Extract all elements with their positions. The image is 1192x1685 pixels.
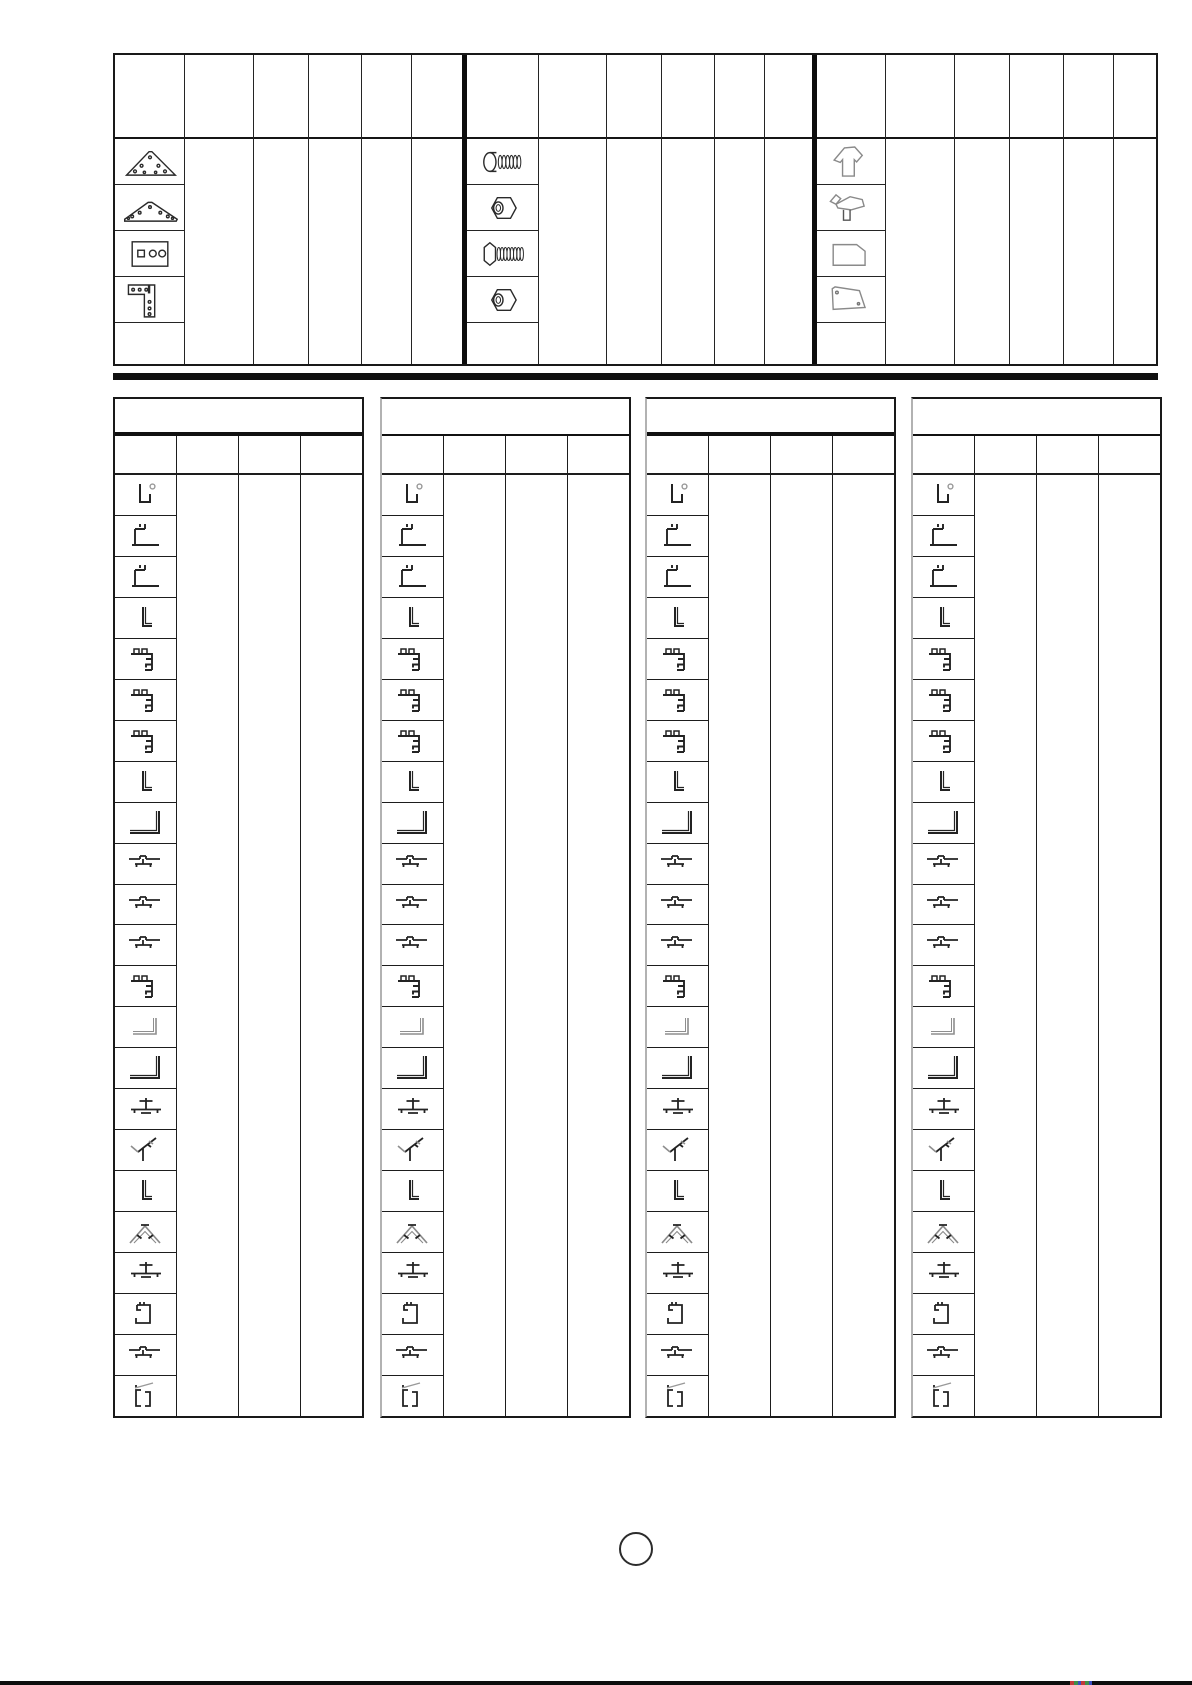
profile-row bbox=[913, 885, 974, 926]
table-header-cell bbox=[607, 55, 661, 139]
glazing-bar-profile-icon bbox=[924, 1338, 964, 1372]
profile-row bbox=[382, 516, 443, 557]
large-angle-profile-icon bbox=[393, 1051, 433, 1085]
profile-column-header bbox=[506, 436, 568, 473]
shallow-angle-profile-icon bbox=[393, 1010, 433, 1044]
corner-post-profile-icon bbox=[658, 969, 698, 1003]
profile-row bbox=[913, 721, 974, 762]
part-row bbox=[115, 185, 184, 231]
table-header-cell bbox=[412, 55, 462, 139]
quantity-column bbox=[771, 475, 833, 1416]
table-header-cell bbox=[185, 55, 253, 139]
angle-profile-icon bbox=[924, 765, 964, 799]
quantity-column bbox=[955, 55, 1010, 364]
angle-profile-icon bbox=[924, 1174, 964, 1208]
profile-icon-column bbox=[913, 475, 975, 1416]
door-rail-profile-icon bbox=[924, 1379, 964, 1413]
profile-row bbox=[115, 1253, 176, 1294]
profile-row bbox=[647, 1171, 708, 1212]
profile-row bbox=[913, 762, 974, 803]
profile-row bbox=[913, 844, 974, 885]
profile-row bbox=[115, 803, 176, 844]
glazing-bar-profile-icon bbox=[126, 928, 166, 962]
table-header-cell bbox=[309, 55, 361, 139]
profile-row bbox=[647, 1335, 708, 1376]
profile-row bbox=[382, 475, 443, 516]
glazing-bar-profile-icon bbox=[924, 847, 964, 881]
channel-clip-profile-icon bbox=[924, 1297, 964, 1331]
angle-profile-icon bbox=[658, 765, 698, 799]
profile-row bbox=[913, 1335, 974, 1376]
tee-profile-icon bbox=[126, 1256, 166, 1290]
profile-row bbox=[115, 1007, 176, 1048]
table-header-cell bbox=[1114, 55, 1158, 139]
profile-column-header bbox=[771, 436, 833, 473]
base-sill-profile-icon bbox=[126, 519, 166, 553]
profile-row bbox=[382, 1130, 443, 1171]
page-number-circle bbox=[619, 1532, 653, 1566]
tee-profile-icon bbox=[924, 1092, 964, 1126]
profile-table-3 bbox=[645, 397, 896, 1418]
profile-table-subheader bbox=[382, 436, 629, 475]
large-angle-profile-icon bbox=[126, 806, 166, 840]
profile-row bbox=[382, 1048, 443, 1089]
profile-row bbox=[647, 762, 708, 803]
profile-row bbox=[382, 680, 443, 721]
glazing-bar-profile-icon bbox=[658, 888, 698, 922]
profile-row bbox=[382, 1376, 443, 1416]
u-channel-profile-icon bbox=[393, 478, 433, 512]
profile-row bbox=[913, 1171, 974, 1212]
quantity-column bbox=[301, 475, 362, 1416]
glazing-bar-profile-icon bbox=[924, 928, 964, 962]
profile-row bbox=[647, 844, 708, 885]
table-header-cell bbox=[817, 55, 885, 139]
profile-row bbox=[913, 680, 974, 721]
corner-post-profile-icon bbox=[393, 724, 433, 758]
angle-profile-icon bbox=[658, 1174, 698, 1208]
profile-column-header bbox=[647, 436, 709, 473]
profile-table-subheader bbox=[115, 436, 362, 475]
empty-cell bbox=[886, 139, 954, 364]
profile-row bbox=[913, 516, 974, 557]
profile-row bbox=[647, 1007, 708, 1048]
empty-cell bbox=[955, 139, 1009, 364]
glazing-bar-profile-icon bbox=[126, 1338, 166, 1372]
large-angle-profile-icon bbox=[658, 806, 698, 840]
empty-cell bbox=[185, 139, 253, 364]
profile-table-subheader bbox=[913, 436, 1160, 475]
profile-column-header bbox=[382, 436, 444, 473]
profile-row bbox=[115, 844, 176, 885]
quantity-column bbox=[1010, 55, 1064, 364]
profile-row bbox=[647, 1130, 708, 1171]
corner-post-profile-icon bbox=[126, 724, 166, 758]
profile-row bbox=[647, 475, 708, 516]
profile-row bbox=[382, 925, 443, 966]
profile-row bbox=[115, 680, 176, 721]
door-rail-profile-icon bbox=[658, 1379, 698, 1413]
profile-row bbox=[382, 1007, 443, 1048]
table-header-cell bbox=[662, 55, 714, 139]
profile-icon-column bbox=[115, 475, 177, 1416]
quantity-column bbox=[568, 475, 629, 1416]
long-hex-bolt-icon bbox=[473, 233, 533, 275]
tee-profile-icon bbox=[924, 1256, 964, 1290]
table-header-cell bbox=[254, 55, 308, 139]
profile-column-header bbox=[568, 436, 629, 473]
ridge-profile-icon bbox=[126, 1215, 166, 1249]
corner-post-profile-icon bbox=[393, 642, 433, 676]
profile-table-1 bbox=[113, 397, 364, 1418]
profile-row bbox=[115, 885, 176, 926]
base-sill-profile-icon bbox=[924, 519, 964, 553]
profile-table-title-band bbox=[647, 399, 894, 436]
table-header-cell bbox=[362, 55, 411, 139]
shallow-angle-profile-icon bbox=[126, 1010, 166, 1044]
tee-profile-icon bbox=[658, 1256, 698, 1290]
quantity-column bbox=[833, 475, 894, 1416]
profile-row bbox=[647, 1089, 708, 1130]
base-sill-profile-icon bbox=[924, 560, 964, 594]
profile-row bbox=[913, 925, 974, 966]
panel-parts-icon-column bbox=[817, 55, 886, 364]
profile-table-body bbox=[647, 475, 894, 1416]
large-angle-profile-icon bbox=[126, 1051, 166, 1085]
angle-profile-icon bbox=[924, 601, 964, 635]
profile-row bbox=[913, 1007, 974, 1048]
empty-cell bbox=[115, 323, 184, 364]
profile-column-header bbox=[301, 436, 362, 473]
profile-row bbox=[382, 966, 443, 1007]
profile-row bbox=[382, 1253, 443, 1294]
corner-clip-panel-icon bbox=[821, 187, 881, 229]
glazing-bar-profile-icon bbox=[126, 888, 166, 922]
quantity-column bbox=[662, 55, 715, 364]
profile-row bbox=[647, 1253, 708, 1294]
table-header-cell bbox=[539, 55, 606, 139]
door-rail-profile-icon bbox=[393, 1379, 433, 1413]
profile-column-header bbox=[833, 436, 894, 473]
profile-row bbox=[115, 639, 176, 680]
profile-row bbox=[382, 1212, 443, 1253]
profile-column-header bbox=[1099, 436, 1160, 473]
corner-post-profile-icon bbox=[658, 642, 698, 676]
quantity-column bbox=[185, 55, 254, 364]
profile-column-header bbox=[444, 436, 506, 473]
glazing-bar-profile-icon bbox=[658, 1338, 698, 1372]
pan-head-bolt-icon bbox=[473, 141, 533, 183]
profile-row bbox=[913, 557, 974, 598]
tee-profile-icon bbox=[393, 1256, 433, 1290]
empty-cell bbox=[1064, 139, 1113, 364]
profile-row bbox=[647, 680, 708, 721]
profile-row bbox=[382, 1171, 443, 1212]
corner-post-profile-icon bbox=[924, 683, 964, 717]
empty-cell bbox=[467, 323, 538, 364]
base-sill-profile-icon bbox=[126, 560, 166, 594]
empty-cell bbox=[765, 139, 812, 364]
part-row bbox=[115, 231, 184, 277]
tee-profile-icon bbox=[393, 1092, 433, 1126]
profile-row bbox=[647, 885, 708, 926]
tee-profile-icon bbox=[126, 1092, 166, 1126]
profile-row bbox=[647, 598, 708, 639]
parts-inventory-table bbox=[113, 53, 1158, 366]
part-row bbox=[467, 185, 538, 231]
large-angle-profile-icon bbox=[924, 1051, 964, 1085]
profile-column-header bbox=[913, 436, 975, 473]
profile-column-header bbox=[1037, 436, 1099, 473]
profile-row bbox=[647, 1048, 708, 1089]
ridge-profile-icon bbox=[924, 1215, 964, 1249]
hex-nut-icon bbox=[473, 187, 533, 229]
quantity-column bbox=[1037, 475, 1099, 1416]
profile-row bbox=[115, 1376, 176, 1416]
profile-row bbox=[115, 1048, 176, 1089]
quantity-column bbox=[709, 475, 771, 1416]
part-row bbox=[115, 277, 184, 323]
profile-row bbox=[382, 1335, 443, 1376]
profile-row bbox=[115, 1171, 176, 1212]
part-row bbox=[467, 231, 538, 277]
profile-row bbox=[913, 1130, 974, 1171]
empty-cell bbox=[1114, 139, 1158, 364]
profile-row bbox=[913, 639, 974, 680]
table-header-cell bbox=[715, 55, 764, 139]
tee-profile-icon bbox=[658, 1092, 698, 1126]
profile-row bbox=[647, 1294, 708, 1335]
quantity-column bbox=[177, 475, 239, 1416]
l-shaped-plate-icon bbox=[120, 279, 180, 321]
quantity-column bbox=[886, 55, 955, 364]
profile-icon-column bbox=[647, 475, 709, 1416]
manual-parts-page bbox=[0, 0, 1192, 1685]
empty-cell bbox=[309, 139, 361, 364]
profile-row bbox=[913, 598, 974, 639]
profile-row bbox=[913, 1376, 974, 1416]
channel-clip-profile-icon bbox=[126, 1297, 166, 1331]
base-sill-profile-icon bbox=[658, 560, 698, 594]
channel-clip-profile-icon bbox=[393, 1297, 433, 1331]
profile-row bbox=[647, 925, 708, 966]
profile-row bbox=[647, 803, 708, 844]
part-row bbox=[467, 277, 538, 323]
ridge-profile-icon bbox=[658, 1215, 698, 1249]
profile-row bbox=[913, 803, 974, 844]
angle-profile-icon bbox=[126, 1174, 166, 1208]
quantity-column bbox=[1064, 55, 1114, 364]
glazing-bar-profile-icon bbox=[658, 847, 698, 881]
empty-cell bbox=[362, 139, 411, 364]
shallow-angle-profile-icon bbox=[924, 1010, 964, 1044]
empty-cell bbox=[1010, 139, 1063, 364]
empty-cell bbox=[662, 139, 714, 364]
corner-post-profile-icon bbox=[126, 642, 166, 676]
part-row bbox=[817, 231, 885, 277]
corner-post-profile-icon bbox=[393, 683, 433, 717]
empty-cell bbox=[817, 323, 885, 364]
side-panel-icon bbox=[821, 233, 881, 275]
corner-post-profile-icon bbox=[924, 724, 964, 758]
glazing-bar-profile-icon bbox=[393, 928, 433, 962]
profile-row bbox=[382, 639, 443, 680]
profile-row bbox=[115, 1335, 176, 1376]
page-bottom-rule bbox=[0, 1681, 1192, 1685]
fastener-parts-icon-column bbox=[467, 55, 539, 364]
quantity-column bbox=[1099, 475, 1160, 1416]
profile-table-4 bbox=[911, 397, 1162, 1418]
table-header-cell bbox=[467, 55, 538, 139]
profile-icon-column bbox=[382, 475, 444, 1416]
table-header-cell bbox=[955, 55, 1009, 139]
channel-clip-profile-icon bbox=[658, 1297, 698, 1331]
profile-row bbox=[115, 598, 176, 639]
glazing-bar-profile-icon bbox=[126, 847, 166, 881]
u-channel-profile-icon bbox=[126, 478, 166, 512]
table-header-cell bbox=[765, 55, 812, 139]
profile-row bbox=[382, 803, 443, 844]
profile-row bbox=[647, 639, 708, 680]
large-angle-profile-icon bbox=[658, 1051, 698, 1085]
part-row bbox=[817, 139, 885, 185]
profile-row bbox=[382, 844, 443, 885]
profile-column-header bbox=[239, 436, 301, 473]
ridge-profile-icon bbox=[393, 1215, 433, 1249]
profile-row bbox=[115, 1212, 176, 1253]
profile-row bbox=[115, 1130, 176, 1171]
profile-table-title-band bbox=[115, 399, 362, 436]
part-row bbox=[817, 185, 885, 231]
glazing-bar-profile-icon bbox=[924, 888, 964, 922]
profile-row bbox=[913, 966, 974, 1007]
panel-parts-section bbox=[812, 55, 1158, 364]
print-registration-artifact bbox=[1070, 1681, 1092, 1685]
profile-row bbox=[647, 557, 708, 598]
base-sill-profile-icon bbox=[658, 519, 698, 553]
angle-profile-icon bbox=[393, 601, 433, 635]
quantity-column bbox=[506, 475, 568, 1416]
corner-post-profile-icon bbox=[924, 642, 964, 676]
quantity-column bbox=[362, 55, 412, 364]
triangle-gusset-plate-icon bbox=[120, 141, 180, 183]
profile-row bbox=[115, 966, 176, 1007]
empty-cell bbox=[607, 139, 661, 364]
profile-row bbox=[913, 1089, 974, 1130]
quantity-column bbox=[444, 475, 506, 1416]
table-header-cell bbox=[1064, 55, 1113, 139]
profile-table-title-band bbox=[382, 399, 629, 436]
profile-table-subheader bbox=[647, 436, 894, 475]
profile-row bbox=[647, 516, 708, 557]
profile-row bbox=[913, 1294, 974, 1335]
gutter-corner-profile-icon bbox=[924, 1133, 964, 1167]
glazing-bar-profile-icon bbox=[393, 847, 433, 881]
table-header-cell bbox=[1010, 55, 1063, 139]
profile-column-header bbox=[975, 436, 1037, 473]
empty-cell bbox=[254, 139, 308, 364]
empty-cell bbox=[715, 139, 764, 364]
hex-nut-icon bbox=[473, 279, 533, 321]
empty-cell bbox=[412, 139, 462, 364]
sloped-panel-icon bbox=[821, 279, 881, 321]
large-angle-profile-icon bbox=[924, 806, 964, 840]
quantity-column bbox=[309, 55, 362, 364]
glazing-bar-profile-icon bbox=[658, 928, 698, 962]
table-header-cell bbox=[115, 55, 184, 139]
profile-row bbox=[382, 721, 443, 762]
profile-row bbox=[382, 557, 443, 598]
profile-row bbox=[382, 885, 443, 926]
profile-row bbox=[115, 557, 176, 598]
angle-profile-icon bbox=[126, 601, 166, 635]
profile-table-title-band bbox=[913, 399, 1160, 436]
quantity-column bbox=[607, 55, 662, 364]
quantity-column bbox=[239, 475, 301, 1416]
angle-profile-icon bbox=[658, 601, 698, 635]
profile-column-header bbox=[709, 436, 771, 473]
gutter-corner-profile-icon bbox=[658, 1133, 698, 1167]
fastener-parts-section bbox=[462, 55, 812, 364]
corner-post-profile-icon bbox=[126, 969, 166, 1003]
profile-row bbox=[913, 1212, 974, 1253]
profile-row bbox=[115, 925, 176, 966]
part-row bbox=[817, 277, 885, 323]
profile-column-header bbox=[115, 436, 177, 473]
door-rail-profile-icon bbox=[126, 1379, 166, 1413]
empty-cell bbox=[539, 139, 606, 364]
quantity-column bbox=[715, 55, 765, 364]
glazing-bar-profile-icon bbox=[393, 1338, 433, 1372]
corner-post-profile-icon bbox=[126, 683, 166, 717]
profile-row bbox=[115, 516, 176, 557]
profile-table-body bbox=[382, 475, 629, 1416]
profile-row bbox=[115, 721, 176, 762]
profile-row bbox=[382, 1294, 443, 1335]
profile-row bbox=[115, 475, 176, 516]
table-header-cell bbox=[886, 55, 954, 139]
profile-column-header bbox=[177, 436, 239, 473]
profile-row bbox=[115, 1294, 176, 1335]
profile-row bbox=[382, 1089, 443, 1130]
base-sill-profile-icon bbox=[393, 519, 433, 553]
profile-table-body bbox=[913, 475, 1160, 1416]
profile-row bbox=[647, 721, 708, 762]
profile-table-2 bbox=[380, 397, 631, 1418]
part-row bbox=[467, 139, 538, 185]
profile-row bbox=[913, 475, 974, 516]
profile-row bbox=[382, 598, 443, 639]
bracket-parts-icon-column bbox=[115, 55, 185, 364]
profile-row bbox=[647, 1376, 708, 1416]
gutter-corner-profile-icon bbox=[126, 1133, 166, 1167]
u-channel-profile-icon bbox=[924, 478, 964, 512]
quantity-column bbox=[975, 475, 1037, 1416]
angle-profile-icon bbox=[393, 1174, 433, 1208]
gutter-corner-profile-icon bbox=[393, 1133, 433, 1167]
u-channel-profile-icon bbox=[658, 478, 698, 512]
gable-panel-icon bbox=[821, 141, 881, 183]
quantity-column bbox=[539, 55, 607, 364]
profile-row bbox=[647, 1212, 708, 1253]
quantity-column bbox=[1114, 55, 1158, 364]
glazing-bar-profile-icon bbox=[393, 888, 433, 922]
part-row bbox=[115, 139, 184, 185]
section-separator-bar bbox=[113, 373, 1158, 380]
wide-gusset-plate-icon bbox=[120, 187, 180, 229]
rectangular-plate-icon bbox=[120, 233, 180, 275]
profile-table-body bbox=[115, 475, 362, 1416]
